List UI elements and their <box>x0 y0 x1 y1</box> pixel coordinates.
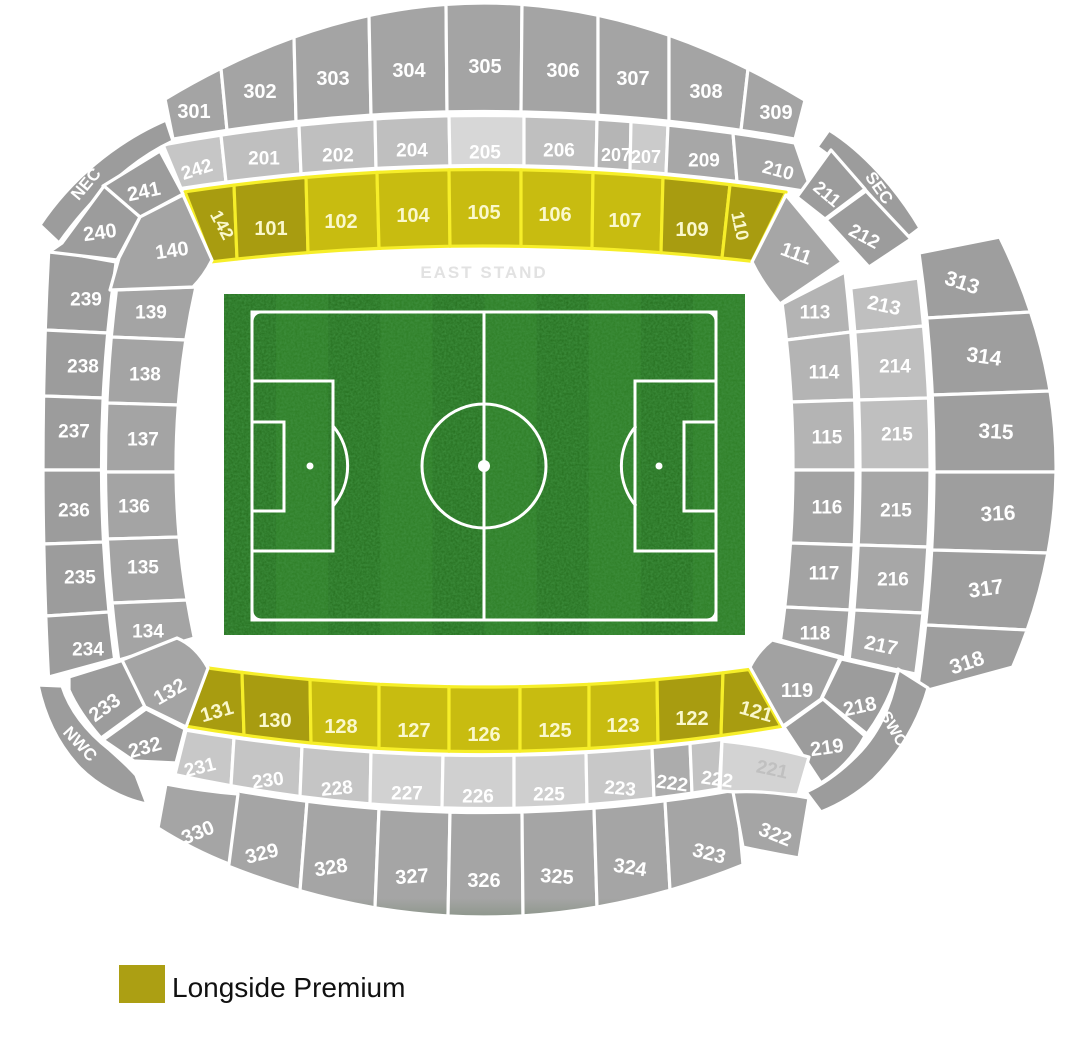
svg-text:102: 102 <box>324 211 357 233</box>
svg-text:316: 316 <box>980 502 1016 527</box>
svg-text:207: 207 <box>601 145 631 165</box>
svg-text:114: 114 <box>809 363 840 384</box>
svg-text:234: 234 <box>72 640 104 661</box>
svg-text:222: 222 <box>700 767 734 792</box>
svg-text:239: 239 <box>70 290 102 311</box>
svg-text:222: 222 <box>655 771 689 796</box>
svg-text:113: 113 <box>800 303 831 324</box>
svg-text:303: 303 <box>316 68 349 90</box>
svg-text:118: 118 <box>800 624 831 645</box>
svg-text:123: 123 <box>606 715 639 737</box>
svg-text:236: 236 <box>58 501 90 522</box>
svg-text:305: 305 <box>468 56 501 78</box>
svg-text:EAST STAND: EAST STAND <box>420 263 547 282</box>
svg-text:202: 202 <box>322 146 354 167</box>
svg-text:304: 304 <box>392 60 426 82</box>
svg-text:125: 125 <box>538 720 571 742</box>
svg-text:237: 237 <box>58 422 90 443</box>
svg-text:309: 309 <box>759 102 792 124</box>
svg-text:130: 130 <box>258 710 291 732</box>
svg-text:140: 140 <box>154 238 190 264</box>
svg-text:204: 204 <box>396 141 428 162</box>
svg-text:139: 139 <box>135 303 167 324</box>
svg-text:205: 205 <box>469 143 501 164</box>
svg-text:235: 235 <box>64 568 96 589</box>
svg-text:306: 306 <box>546 60 579 82</box>
svg-text:119: 119 <box>781 680 813 702</box>
svg-text:225: 225 <box>533 785 565 806</box>
svg-text:101: 101 <box>254 218 287 240</box>
svg-text:238: 238 <box>67 357 99 378</box>
svg-text:315: 315 <box>978 420 1015 445</box>
svg-text:127: 127 <box>397 720 430 742</box>
svg-text:214: 214 <box>879 357 911 378</box>
svg-text:128: 128 <box>324 716 357 738</box>
svg-text:240: 240 <box>82 220 118 246</box>
svg-text:215: 215 <box>880 501 912 522</box>
svg-text:227: 227 <box>391 784 423 805</box>
svg-text:134: 134 <box>132 622 164 643</box>
svg-text:326: 326 <box>467 870 500 892</box>
svg-text:135: 135 <box>127 558 159 579</box>
svg-text:107: 107 <box>608 210 641 232</box>
svg-text:209: 209 <box>688 151 720 172</box>
svg-text:116: 116 <box>812 498 843 519</box>
svg-text:317: 317 <box>967 575 1005 603</box>
svg-text:302: 302 <box>243 81 276 103</box>
svg-text:216: 216 <box>877 570 909 591</box>
svg-text:105: 105 <box>467 202 500 224</box>
svg-text:117: 117 <box>809 564 840 585</box>
svg-text:223: 223 <box>603 777 636 801</box>
svg-text:104: 104 <box>396 205 430 227</box>
svg-text:137: 137 <box>127 430 159 451</box>
svg-text:138: 138 <box>129 365 161 386</box>
svg-text:230: 230 <box>251 768 285 793</box>
svg-text:308: 308 <box>689 81 722 103</box>
svg-text:207: 207 <box>631 147 661 167</box>
svg-text:206: 206 <box>543 141 575 162</box>
svg-text:314: 314 <box>965 343 1003 371</box>
svg-text:106: 106 <box>538 204 571 226</box>
svg-text:215: 215 <box>881 425 913 446</box>
svg-text:327: 327 <box>395 865 430 889</box>
svg-text:Longside Premium: Longside Premium <box>172 972 405 1003</box>
svg-text:226: 226 <box>462 787 494 808</box>
svg-text:115: 115 <box>812 428 843 449</box>
svg-text:122: 122 <box>675 708 708 730</box>
svg-text:228: 228 <box>320 777 353 801</box>
svg-text:126: 126 <box>467 724 500 746</box>
svg-text:307: 307 <box>616 68 649 90</box>
svg-text:219: 219 <box>809 735 845 761</box>
svg-text:301: 301 <box>177 101 210 123</box>
svg-text:136: 136 <box>118 497 150 518</box>
svg-text:325: 325 <box>540 865 575 889</box>
svg-text:109: 109 <box>675 219 708 241</box>
svg-text:201: 201 <box>248 149 280 170</box>
